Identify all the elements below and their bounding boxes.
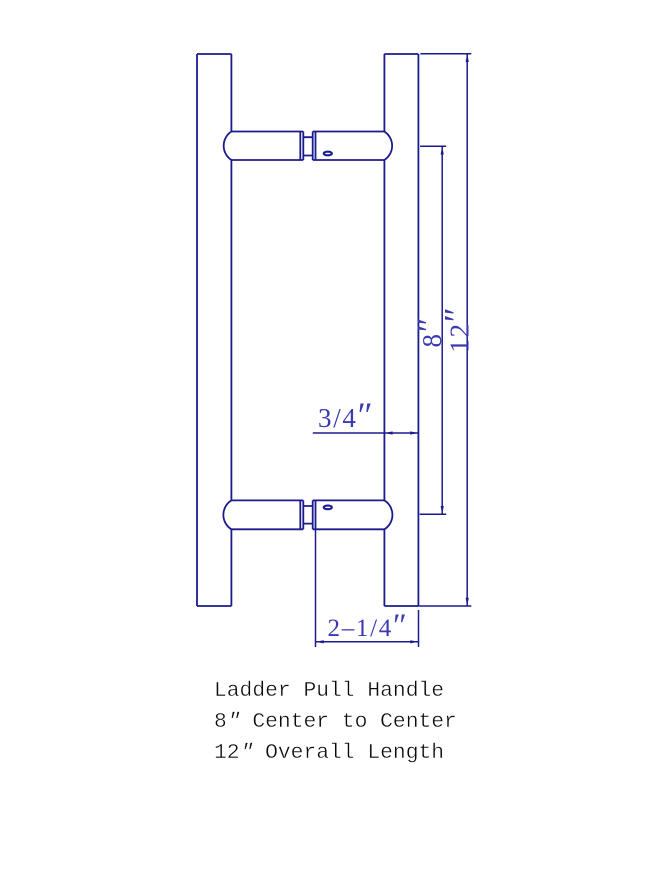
svg-text:3/4″: 3/4″: [318, 395, 374, 435]
svg-text:2–1/4″: 2–1/4″: [328, 608, 409, 644]
